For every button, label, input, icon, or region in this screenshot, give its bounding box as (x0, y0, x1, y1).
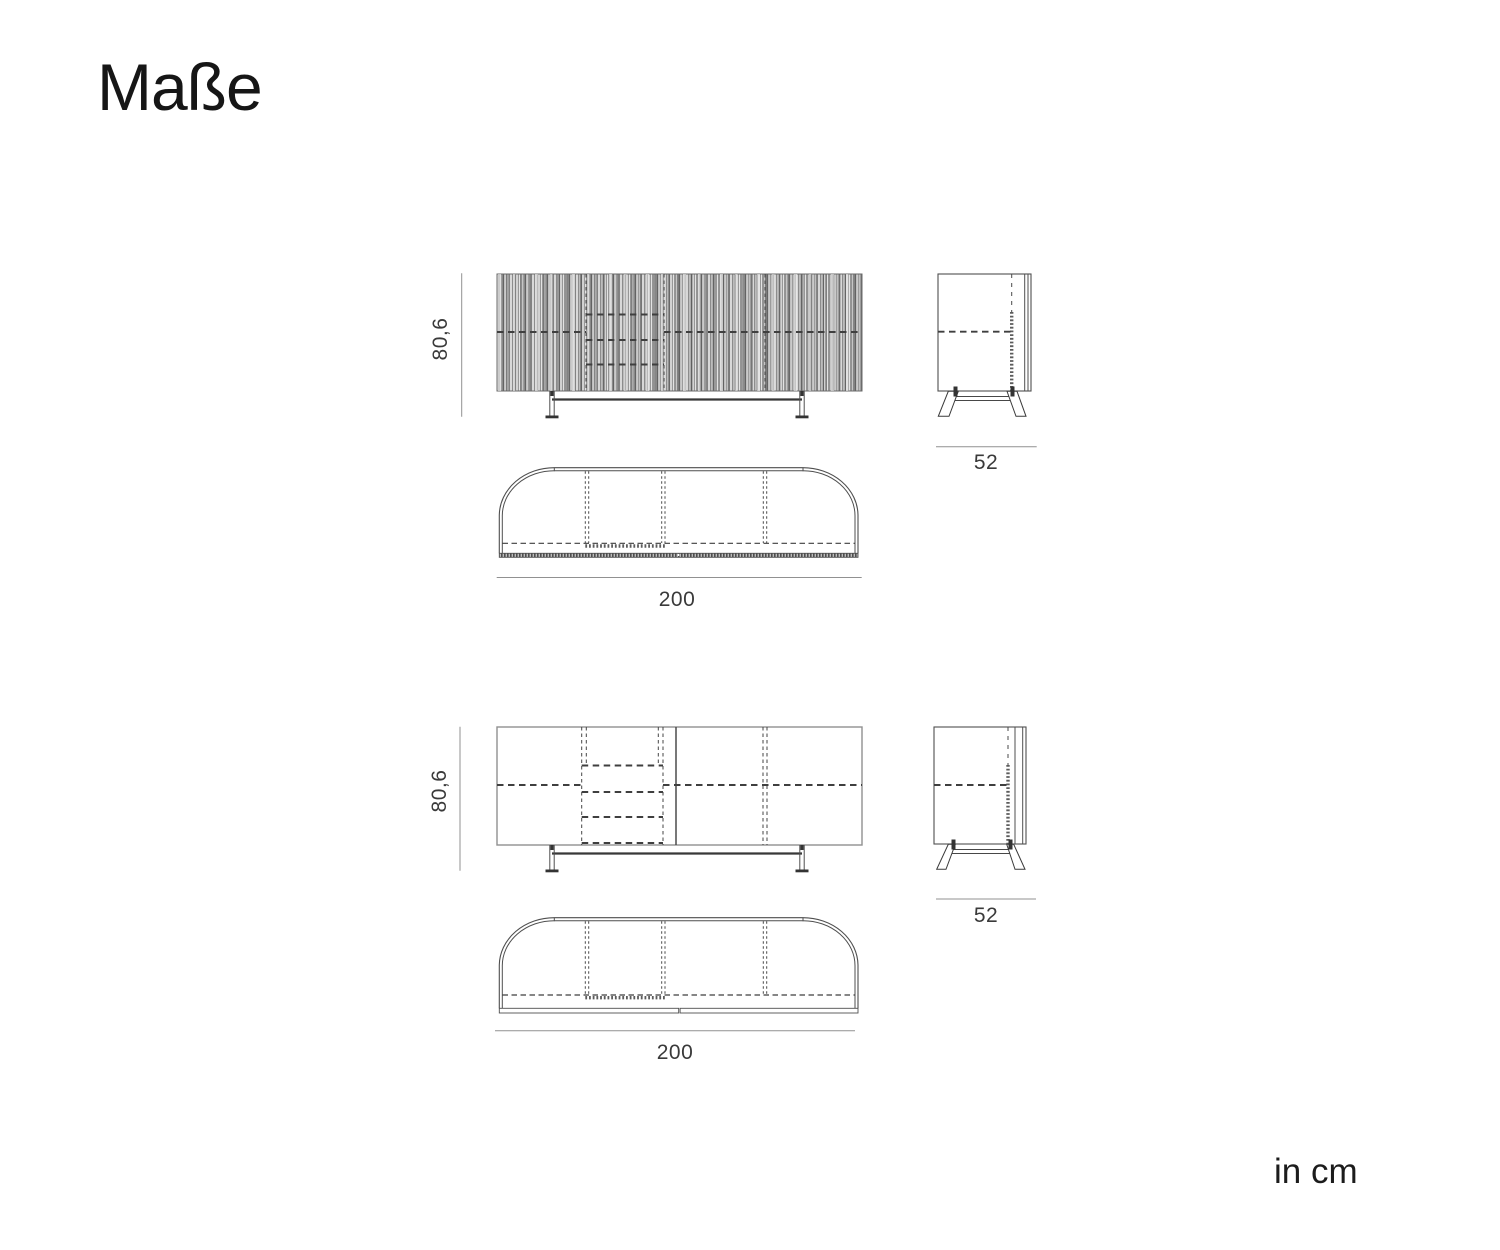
internal-dashed-lines (503, 471, 856, 546)
fluted-top-view: 200 (480, 455, 880, 615)
plain-front-view: 80,6 (415, 715, 875, 890)
plain-side-drawing (920, 715, 1060, 930)
top-outline (499, 468, 858, 554)
page-title: Maße (97, 54, 262, 120)
fluted-top-drawing (480, 455, 880, 590)
plain-front-drawing (415, 715, 875, 890)
legs (546, 845, 809, 872)
fluted-side-view: 52 (920, 265, 1060, 480)
fluted-side-drawing (920, 265, 1060, 477)
fluted-front-drawing (415, 265, 875, 435)
height-dimension-label: 80,6 (429, 318, 453, 361)
plain-top-drawing (480, 905, 880, 1045)
cabinet-body (497, 727, 862, 845)
cabinet-body (934, 727, 1026, 844)
plain-top-view: 200 (480, 905, 880, 1070)
front-edge-band (499, 553, 858, 557)
cabinet-body (938, 274, 1031, 391)
door-front-edges (499, 1008, 858, 1013)
depth-dimension-label: 52 (974, 904, 998, 928)
fluted-front-view: 80,6 (415, 265, 875, 435)
depth-dimension-label: 52 (974, 451, 998, 475)
width-dimension-label: 200 (657, 1041, 694, 1065)
width-dimension-label: 200 (659, 588, 696, 612)
height-dimension-label: 80,6 (428, 770, 452, 813)
legs (546, 391, 809, 418)
dimension-drawing-page: Maße (0, 0, 1500, 1250)
internal-dashed-lines (503, 921, 856, 998)
units-note: in cm (1274, 1152, 1358, 1192)
plain-side-view: 52 (920, 715, 1060, 935)
